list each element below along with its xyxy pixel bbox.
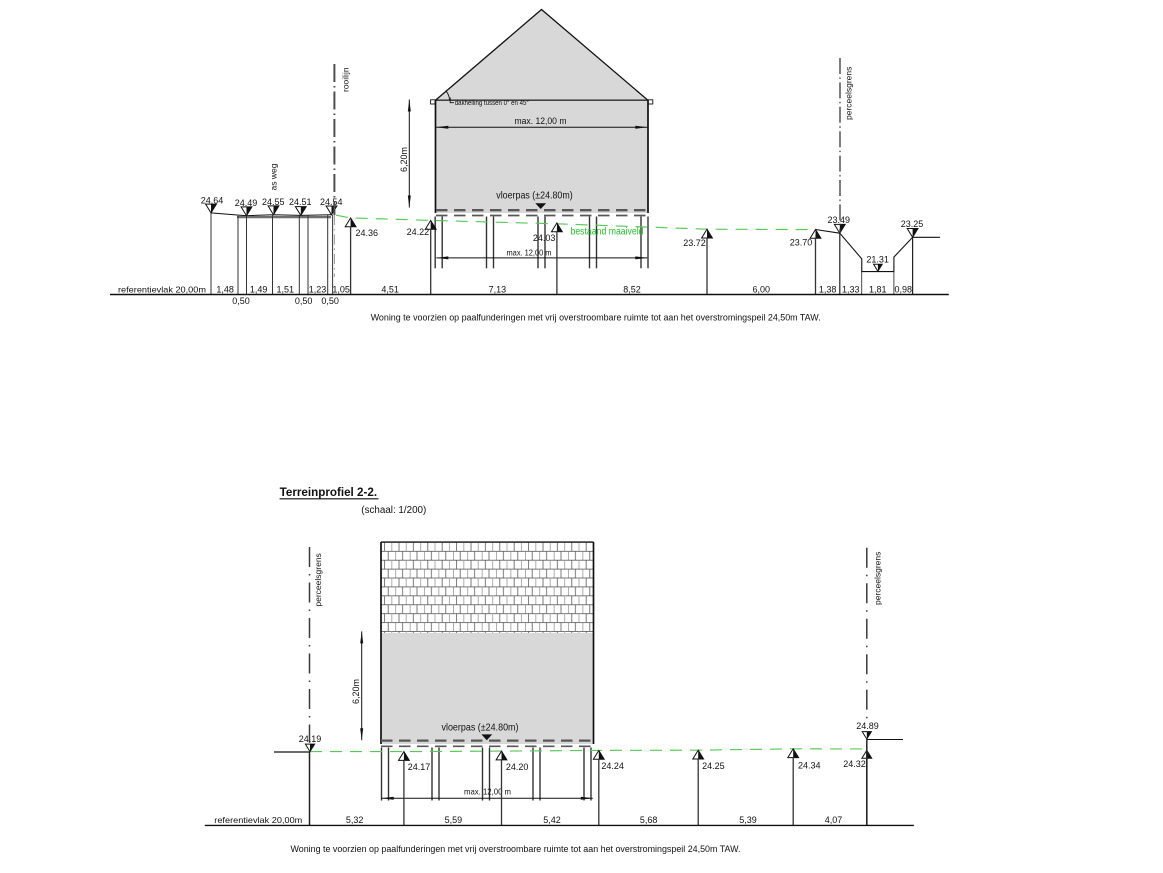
svg-text:Terreinprofiel 2-2.: Terreinprofiel 2-2. — [280, 485, 378, 499]
svg-text:as weg: as weg — [269, 163, 279, 190]
svg-text:1,33: 1,33 — [842, 284, 860, 294]
svg-text:24.22: 24.22 — [407, 227, 430, 237]
svg-text:23.72: 23.72 — [683, 238, 706, 248]
svg-text:(schaal: 1/200): (schaal: 1/200) — [361, 505, 426, 516]
svg-text:23.70: 23.70 — [790, 238, 813, 248]
svg-text:24.64: 24.64 — [201, 195, 224, 205]
svg-text:4,07: 4,07 — [825, 815, 843, 825]
svg-text:1,23: 1,23 — [309, 284, 327, 294]
svg-text:0,50: 0,50 — [321, 296, 339, 306]
svg-text:24.19: 24.19 — [299, 734, 322, 744]
svg-text:24.24: 24.24 — [601, 761, 624, 771]
svg-text:perceelsgrens: perceelsgrens — [844, 67, 854, 120]
svg-text:1,05: 1,05 — [332, 284, 350, 294]
svg-text:1,49: 1,49 — [250, 284, 268, 294]
svg-text:max. 12,00 m: max. 12,00 m — [515, 116, 567, 126]
svg-text:0,98: 0,98 — [895, 284, 913, 294]
svg-text:5,32: 5,32 — [346, 815, 364, 825]
svg-text:24.17: 24.17 — [408, 762, 431, 772]
svg-text:24.25: 24.25 — [702, 761, 725, 771]
svg-text:max. 12,00 m: max. 12,00 m — [464, 787, 511, 797]
svg-text:bestaand maaiveld: bestaand maaiveld — [571, 226, 644, 237]
svg-text:24.20: 24.20 — [506, 762, 529, 772]
svg-text:24.36: 24.36 — [356, 228, 379, 238]
svg-text:6,00: 6,00 — [753, 284, 771, 294]
svg-text:24.55: 24.55 — [262, 197, 285, 207]
svg-text:rooilijn: rooilijn — [341, 67, 351, 92]
svg-text:23.25: 23.25 — [901, 219, 924, 229]
svg-text:5,42: 5,42 — [543, 815, 561, 825]
svg-text:24.34: 24.34 — [798, 760, 821, 770]
svg-text:24.49: 24.49 — [235, 198, 258, 208]
svg-text:5,39: 5,39 — [739, 815, 757, 825]
svg-text:23.49: 23.49 — [828, 215, 851, 225]
svg-text:referentievlak 20,00m: referentievlak 20,00m — [118, 284, 206, 294]
svg-text:4,51: 4,51 — [381, 284, 399, 294]
svg-text:referentievlak 20,00m: referentievlak 20,00m — [214, 815, 302, 825]
svg-text:vloerpas (±24.80m): vloerpas (±24.80m) — [496, 191, 573, 202]
svg-text:24.89: 24.89 — [856, 721, 879, 731]
svg-text:24.03: 24.03 — [533, 233, 556, 243]
svg-text:1,48: 1,48 — [216, 284, 234, 294]
svg-text:8,52: 8,52 — [623, 284, 641, 294]
svg-text:max. 12,00 m: max. 12,00 m — [507, 247, 552, 257]
svg-text:21.31: 21.31 — [866, 254, 889, 264]
svg-text:6,20m: 6,20m — [399, 147, 409, 172]
svg-text:24.32: 24.32 — [843, 759, 866, 769]
svg-text:Woning te voorzien op paalfund: Woning te voorzien op paalfunderingen me… — [371, 313, 821, 323]
svg-text:Woning te voorzien op paalfund: Woning te voorzien op paalfunderingen me… — [291, 844, 741, 854]
svg-text:1,51: 1,51 — [277, 284, 295, 294]
svg-text:7,13: 7,13 — [489, 284, 507, 294]
svg-text:1,81: 1,81 — [869, 284, 887, 294]
svg-text:0,50: 0,50 — [232, 296, 250, 306]
svg-text:vloerpas (±24.80m): vloerpas (±24.80m) — [442, 722, 519, 733]
svg-text:dakhelling tussen 0° en 45°: dakhelling tussen 0° en 45° — [455, 99, 529, 107]
svg-text:0,50: 0,50 — [295, 296, 313, 306]
svg-text:6,20m: 6,20m — [351, 679, 361, 704]
svg-text:perceelsgrens: perceelsgrens — [313, 553, 323, 606]
svg-text:24.51: 24.51 — [289, 197, 312, 207]
svg-text:5,68: 5,68 — [640, 815, 658, 825]
svg-text:24.54: 24.54 — [320, 197, 343, 207]
svg-text:perceelsgrens: perceelsgrens — [873, 552, 883, 605]
svg-text:5,59: 5,59 — [445, 815, 463, 825]
svg-text:1,38: 1,38 — [819, 284, 837, 294]
